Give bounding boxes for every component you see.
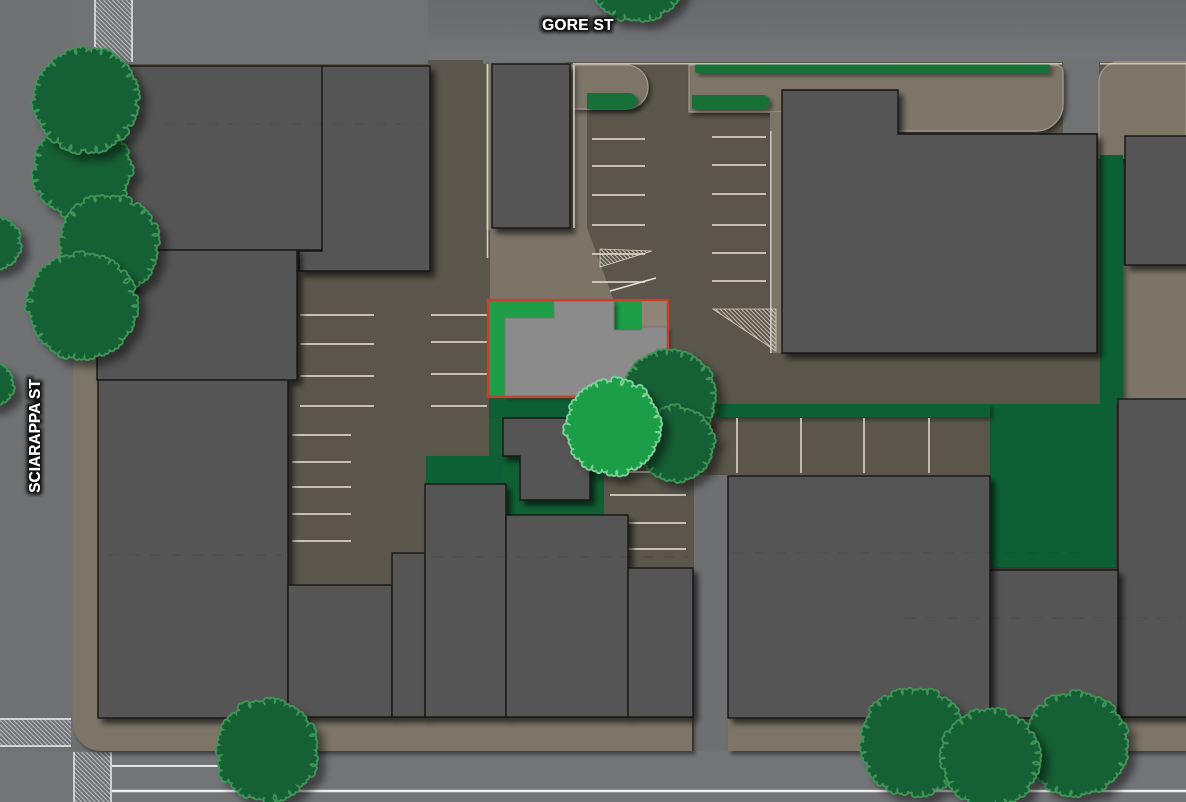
svg-text:GORE ST: GORE ST [542,17,614,34]
svg-text:SCIARAPPA ST: SCIARAPPA ST [27,379,44,493]
